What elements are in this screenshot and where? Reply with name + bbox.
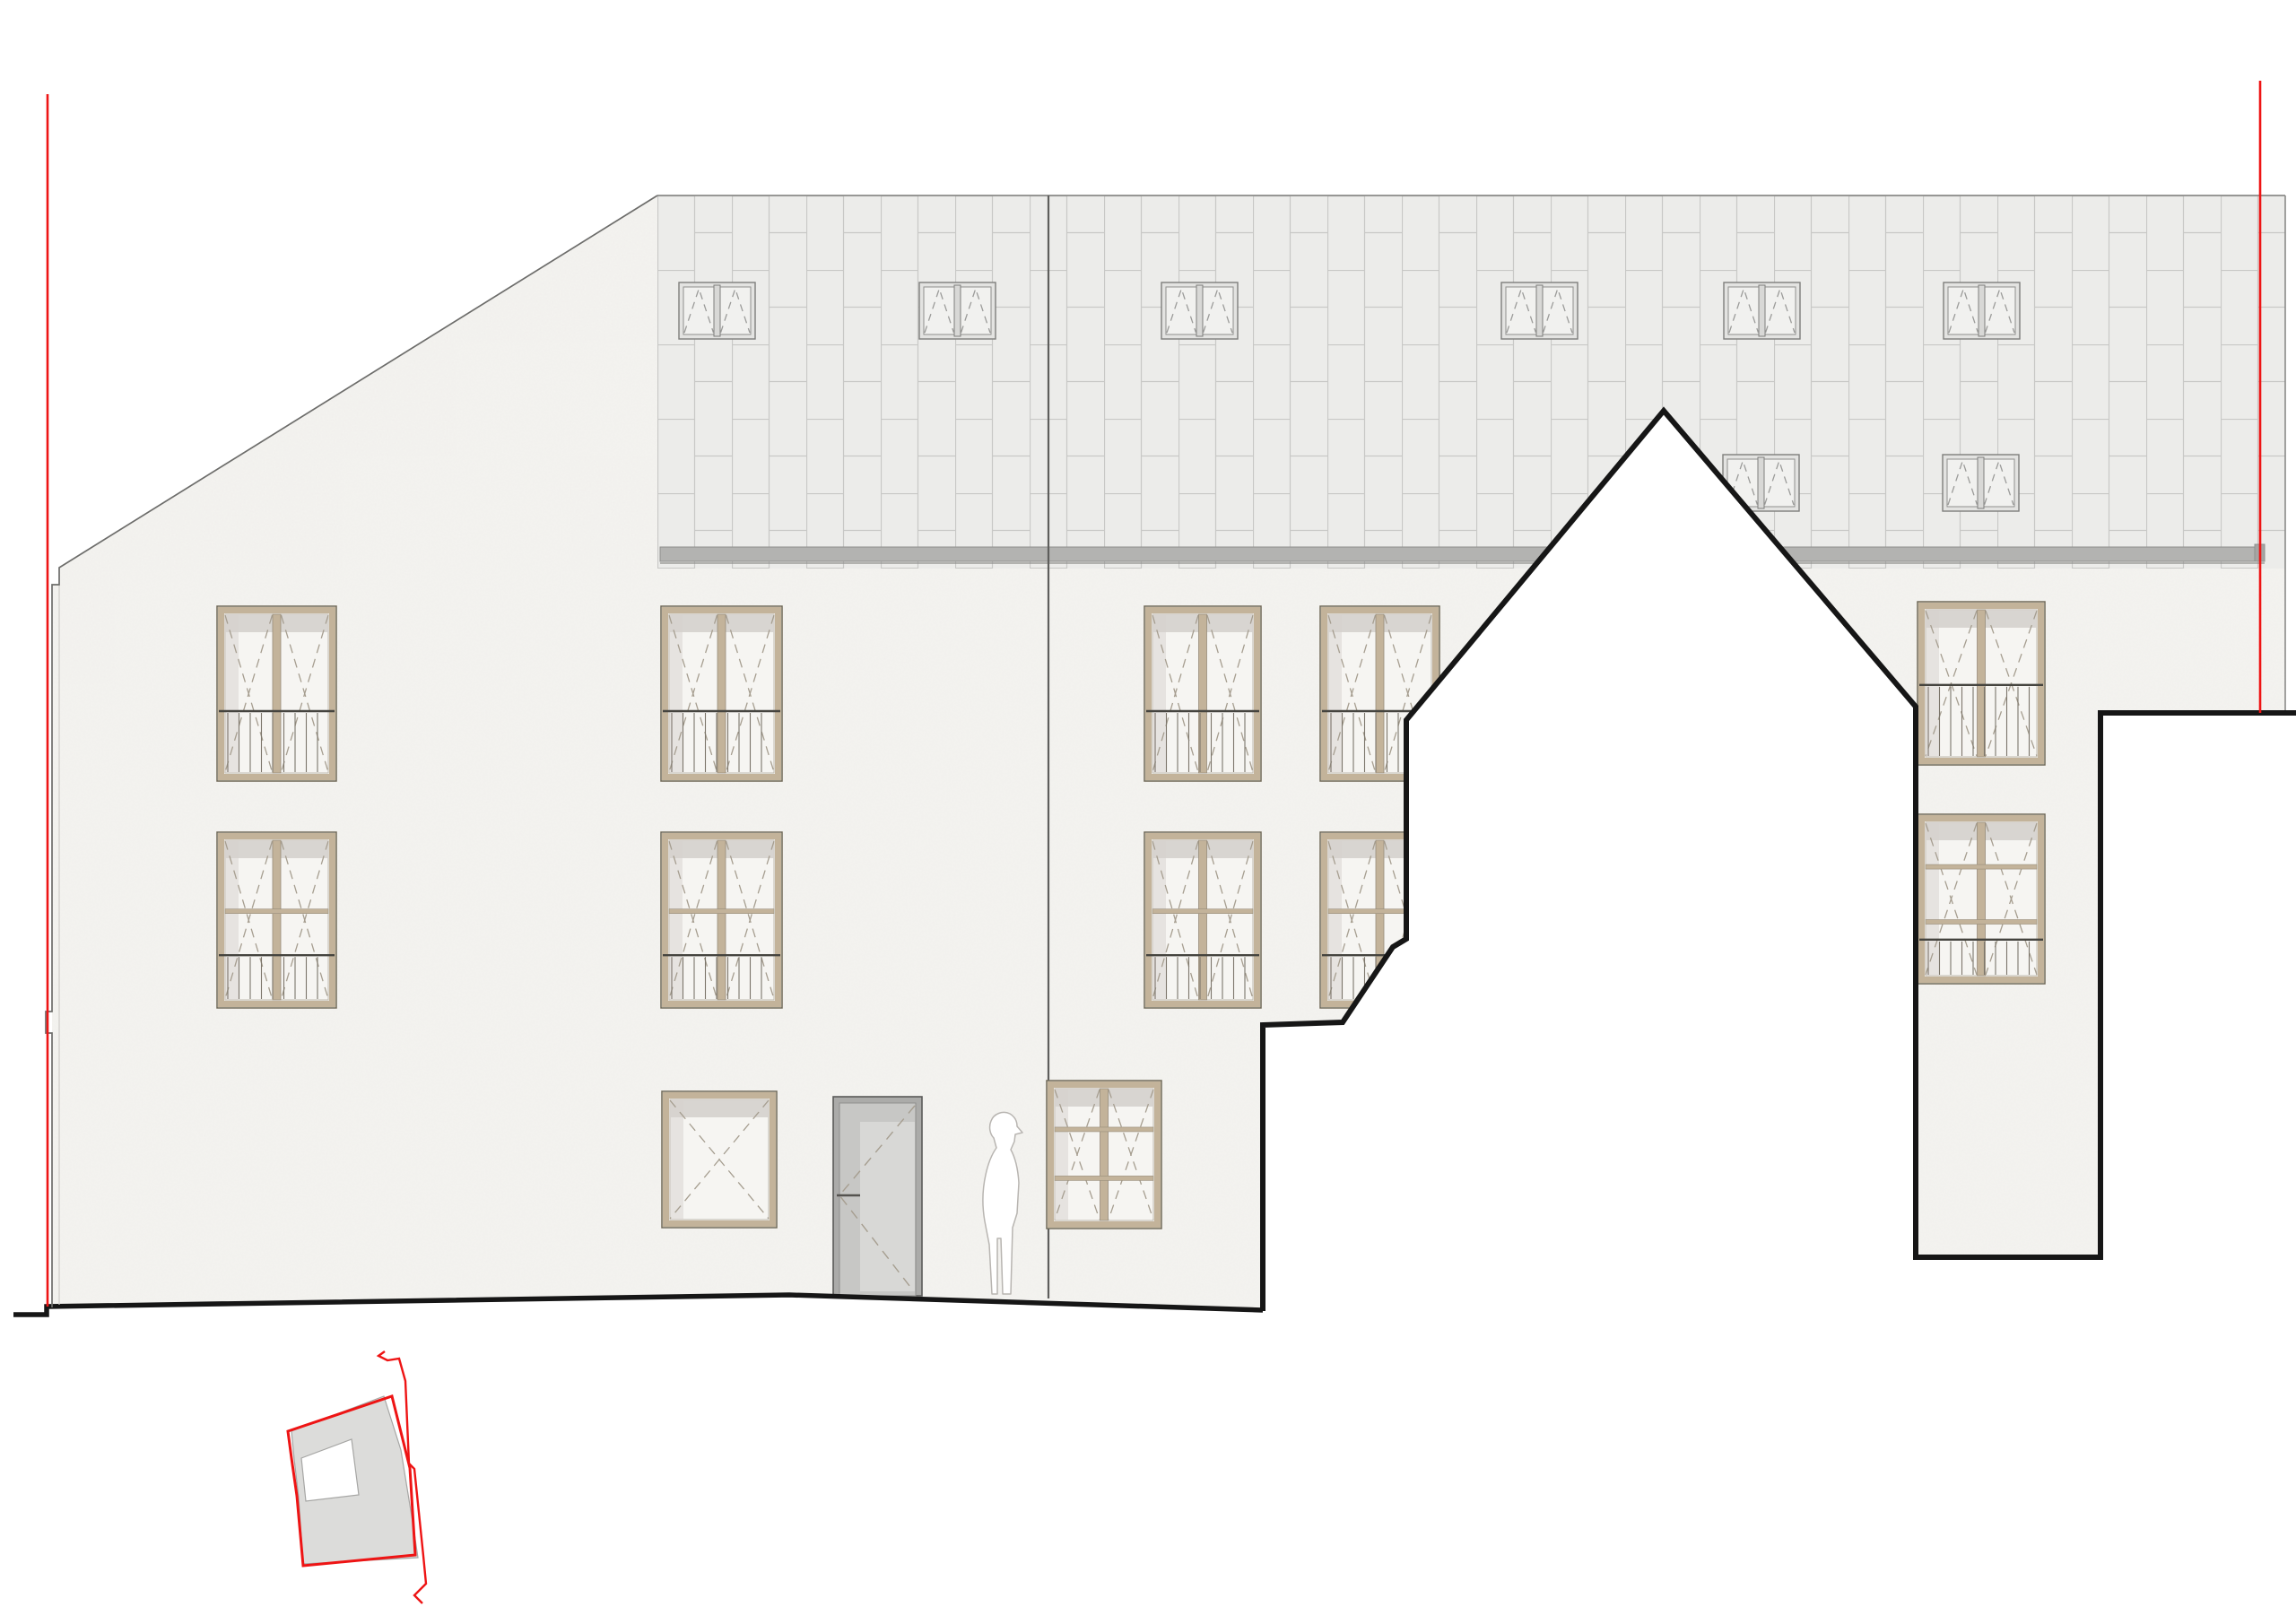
facade-window — [662, 1091, 777, 1228]
roof-window — [919, 282, 996, 339]
gutter-bar — [660, 547, 2265, 561]
roof-window — [1501, 282, 1578, 339]
roof-window — [1724, 282, 1800, 339]
elevation-drawing-page — [0, 0, 2296, 1624]
facade-window — [1144, 606, 1261, 781]
reveal-shadow-left — [670, 1099, 683, 1220]
elevation-canvas — [0, 0, 2296, 1624]
facade-window — [1047, 1081, 1161, 1229]
facade-window — [1144, 832, 1261, 1008]
facade-window — [1918, 814, 2045, 984]
roof-window — [1161, 282, 1238, 339]
roof-window — [1944, 282, 2020, 339]
gutter — [660, 544, 2265, 563]
reveal-shadow-left — [1926, 822, 1939, 976]
facade-window — [661, 832, 782, 1008]
reveal-shadow-left — [1926, 610, 1939, 757]
facade-window — [217, 606, 336, 781]
reveal-shadow-top — [670, 1099, 769, 1117]
facade-window — [217, 832, 336, 1008]
facade-window — [661, 606, 782, 781]
roof-tiles — [657, 195, 2285, 569]
ground-mask — [0, 1295, 1263, 1624]
roof-window — [679, 282, 755, 339]
door-glass — [860, 1122, 915, 1291]
facade-window — [1918, 602, 2045, 765]
roof-window — [1943, 455, 2019, 511]
entrance-door — [833, 1097, 922, 1296]
